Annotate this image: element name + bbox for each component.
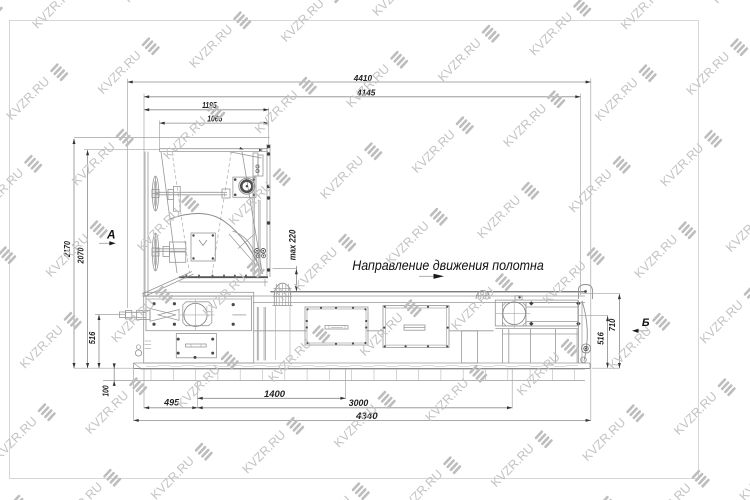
svg-text:KVZR.RU: KVZR.RU [671,389,720,438]
svg-text:1400: 1400 [264,389,286,400]
svg-text:KVZR.RU: KVZR.RU [632,232,681,281]
svg-text:KVZR.RU: KVZR.RU [370,0,419,19]
svg-text:KVZR.RU: KVZR.RU [397,467,446,500]
svg-text:KVZR.RU: KVZR.RU [121,0,170,5]
svg-text:KVZR.RU: KVZR.RU [540,258,589,307]
svg-text:KVZR.RU: KVZR.RU [0,166,26,215]
svg-text:KVZR.RU: KVZR.RU [501,101,550,150]
svg-text:100: 100 [100,385,110,396]
svg-text:KVZR.RU: KVZR.RU [57,480,106,500]
svg-text:516: 516 [596,332,606,345]
svg-text:KVZR.RU: KVZR.RU [148,454,197,500]
svg-text:KVZR.RU: KVZR.RU [187,22,236,71]
svg-text:KVZR.RU: KVZR.RU [423,376,472,425]
svg-text:KVZR.RU: KVZR.RU [527,10,576,59]
svg-text:KVZR.RU: KVZR.RU [318,153,367,202]
svg-text:KVZR.RU: KVZR.RU [240,428,289,477]
svg-text:KVZR.RU: KVZR.RU [278,0,327,45]
svg-text:KVZR.RU: KVZR.RU [226,179,275,228]
svg-text:KVZR.RU: KVZR.RU [658,141,707,190]
svg-text:KVZR.RU: KVZR.RU [344,62,393,111]
svg-text:KVZR.RU: KVZR.RU [723,206,750,255]
svg-text:max 220: max 220 [288,230,298,261]
svg-text:KVZR.RU: KVZR.RU [305,493,354,500]
svg-text:KVZR.RU: KVZR.RU [645,481,694,500]
svg-text:KVZR.RU: KVZR.RU [4,74,53,123]
svg-text:KVZR.RU: KVZR.RU [30,0,79,31]
svg-text:KVZR.RU: KVZR.RU [618,0,667,32]
svg-text:KVZR.RU: KVZR.RU [252,88,301,137]
svg-text:KVZR.RU: KVZR.RU [684,49,733,98]
svg-text:KVZR.RU: KVZR.RU [435,36,484,85]
svg-text:KVZR.RU: KVZR.RU [514,350,563,399]
svg-text:KVZR.RU: KVZR.RU [69,140,118,189]
svg-text:516: 516 [87,331,97,344]
svg-text:KVZR.RU: KVZR.RU [592,75,641,124]
svg-text:KVZR.RU: KVZR.RU [488,441,537,490]
svg-text:KVZR.RU: KVZR.RU [17,323,66,372]
svg-text:KVZR.RU: KVZR.RU [331,402,380,451]
svg-text:KVZR.RU: KVZR.RU [95,48,144,97]
svg-text:KVZR.RU: KVZR.RU [409,127,458,176]
svg-text:Направление движения полотна: Направление движения полотна [352,258,544,273]
svg-text:KVZR.RU: KVZR.RU [292,245,341,294]
svg-text:KVZR.RU: KVZR.RU [710,0,750,6]
svg-text:KVZR.RU: KVZR.RU [737,455,750,500]
svg-text:KVZR.RU: KVZR.RU [0,414,40,463]
svg-text:KVZR.RU: KVZR.RU [475,193,524,242]
svg-text:KVZR.RU: KVZR.RU [161,114,210,163]
svg-text:KVZR.RU: KVZR.RU [697,298,746,347]
svg-text:KVZR.RU: KVZR.RU [580,415,629,464]
svg-text:KVZR.RU: KVZR.RU [357,310,406,359]
